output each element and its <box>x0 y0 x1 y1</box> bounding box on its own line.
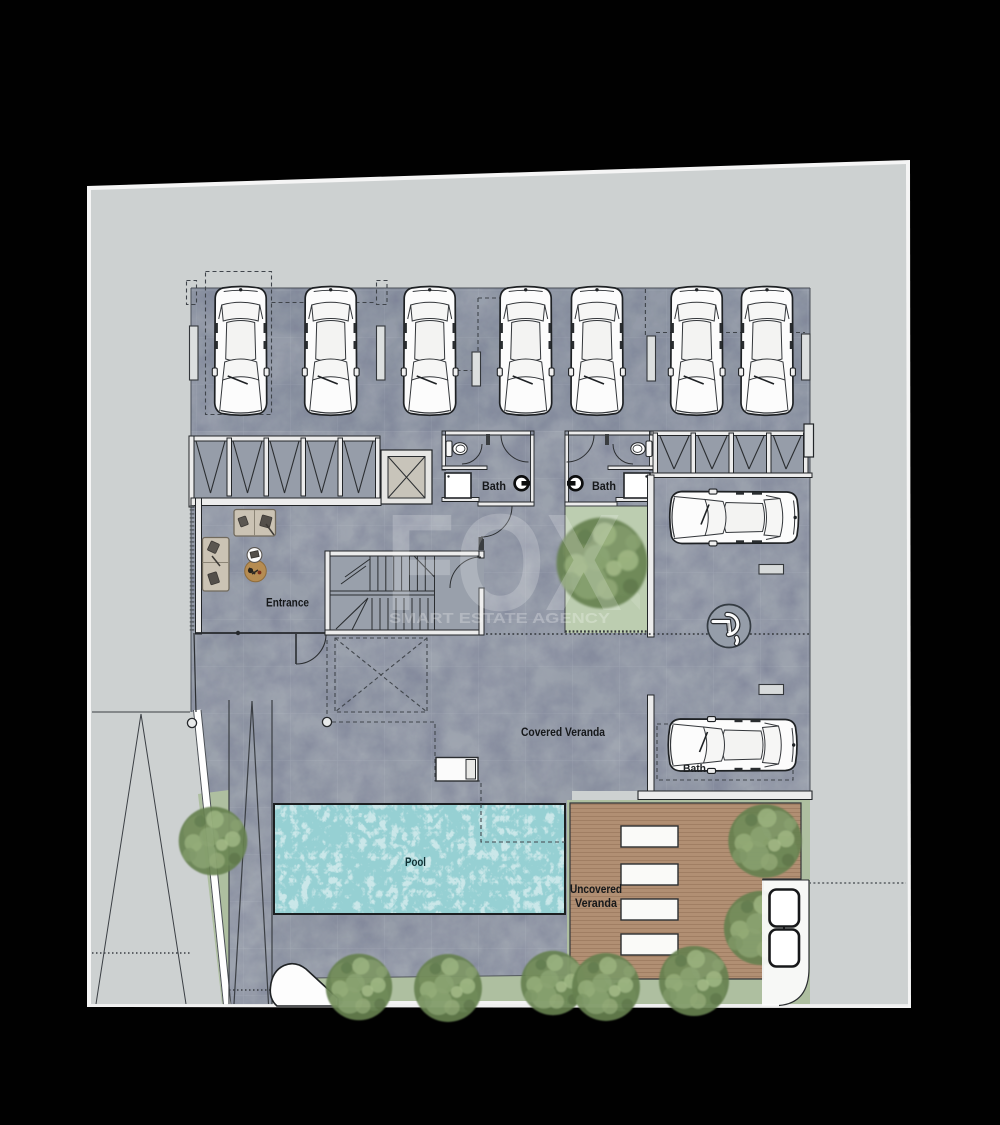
svg-text:Covered Veranda: Covered Veranda <box>521 727 606 739</box>
svg-text:Bath: Bath <box>683 763 706 775</box>
svg-text:Veranda: Veranda <box>575 898 618 910</box>
svg-text:Pool: Pool <box>405 857 426 869</box>
svg-text:Entrance: Entrance <box>266 598 309 610</box>
svg-text:SMART ESTATE AGENCY: SMART ESTATE AGENCY <box>389 610 610 627</box>
svg-text:Uncovered: Uncovered <box>570 884 622 896</box>
